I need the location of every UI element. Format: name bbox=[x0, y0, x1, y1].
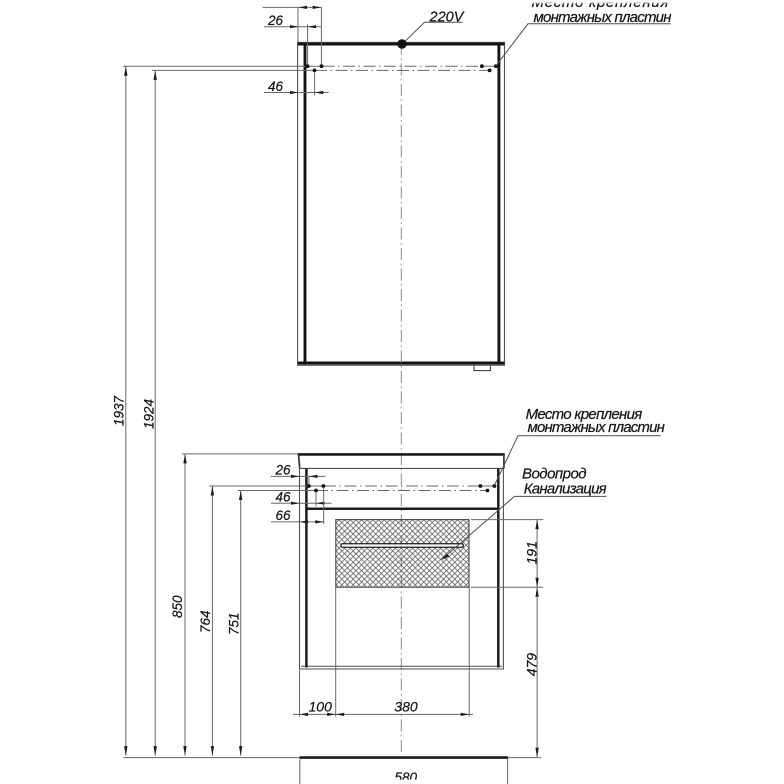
svg-text:1937: 1937 bbox=[112, 395, 127, 426]
svg-text:46: 46 bbox=[276, 489, 292, 504]
svg-text:монтажных пластин: монтажных пластин bbox=[528, 419, 665, 436]
svg-text:100: 100 bbox=[309, 699, 333, 715]
svg-text:66: 66 bbox=[276, 508, 292, 523]
svg-text:380: 380 bbox=[394, 699, 418, 715]
svg-text:Канализация: Канализация bbox=[524, 480, 607, 497]
svg-text:220V: 220V bbox=[429, 9, 465, 25]
svg-text:751: 751 bbox=[227, 612, 242, 635]
svg-text:1924: 1924 bbox=[142, 399, 157, 429]
svg-text:46: 46 bbox=[268, 79, 284, 94]
svg-text:191: 191 bbox=[523, 541, 539, 564]
svg-text:26: 26 bbox=[267, 13, 284, 28]
svg-text:479: 479 bbox=[523, 653, 539, 677]
svg-text:764: 764 bbox=[198, 610, 213, 633]
svg-text:850: 850 bbox=[170, 595, 185, 618]
svg-text:26: 26 bbox=[275, 463, 292, 478]
